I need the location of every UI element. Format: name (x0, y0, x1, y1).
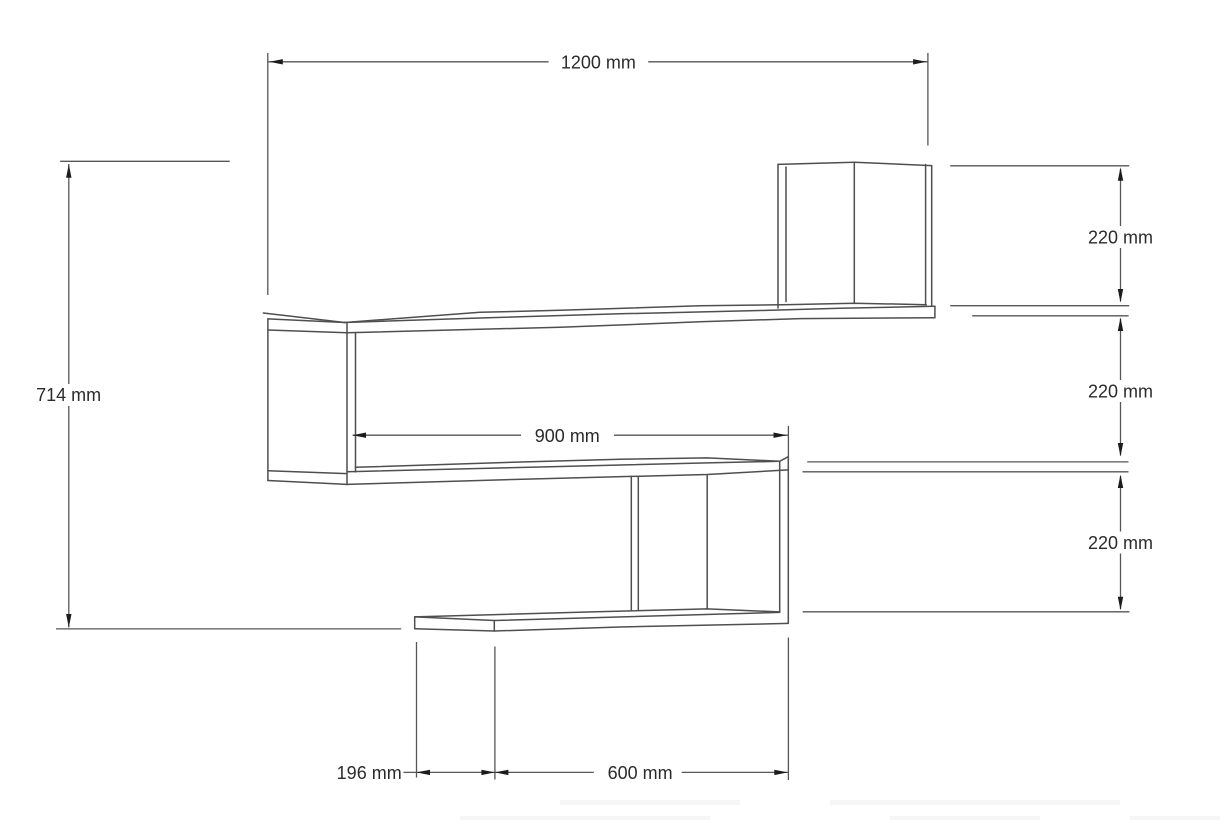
svg-text:1200 mm: 1200 mm (561, 52, 636, 72)
svg-text:600 mm: 600 mm (608, 763, 673, 783)
svg-text:900 mm: 900 mm (535, 426, 600, 446)
svg-text:714 mm: 714 mm (36, 385, 101, 405)
svg-text:220 mm: 220 mm (1088, 382, 1153, 402)
svg-text:196 mm: 196 mm (337, 763, 402, 783)
svg-text:220 mm: 220 mm (1088, 228, 1153, 248)
svg-text:220 mm: 220 mm (1088, 533, 1153, 553)
